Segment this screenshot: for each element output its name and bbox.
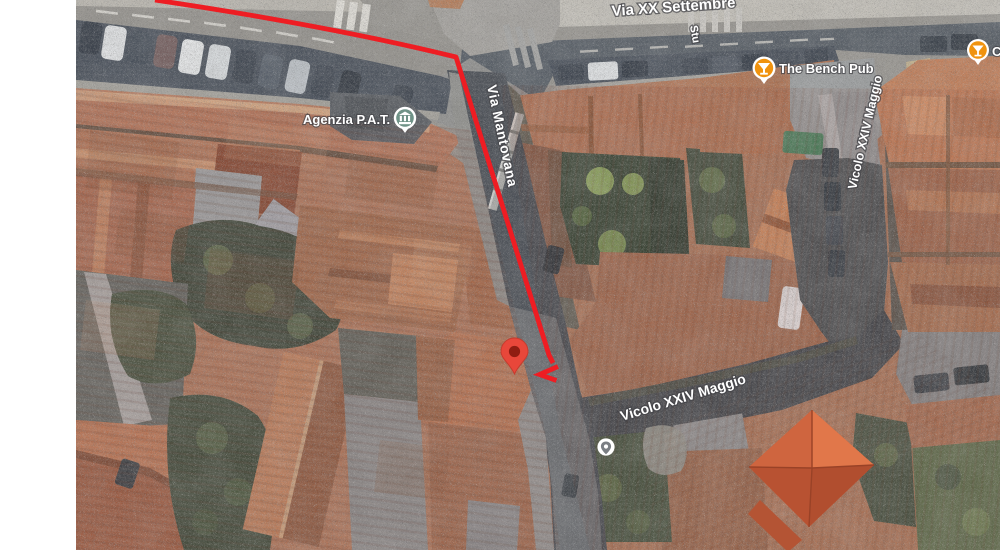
- svg-text:Agenzia P.A.T.: Agenzia P.A.T.: [303, 112, 390, 127]
- svg-text:C: C: [992, 44, 1000, 59]
- svg-text:The Bench Pub: The Bench Pub: [779, 61, 874, 76]
